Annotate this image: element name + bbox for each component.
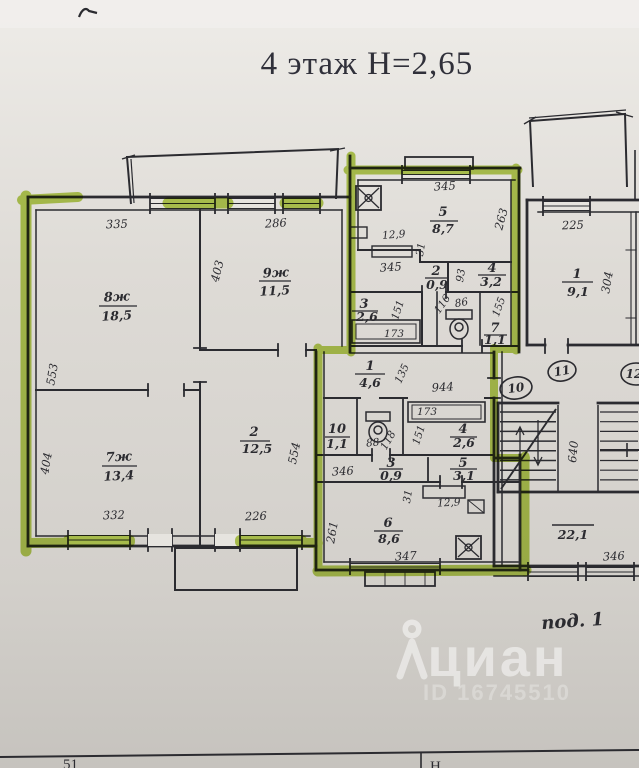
paper-top-strip: [0, 0, 639, 28]
hallway-1-number: 1: [365, 359, 374, 374]
kitchen-6-area: 8,6: [378, 531, 400, 546]
hallway-1-area: 4,6: [359, 375, 381, 390]
dim-129-upper: 12,9: [382, 228, 406, 242]
dim-31-upper: 31: [414, 242, 428, 257]
scanned-floor-plan-page: 4 этаж Н=2,65: [0, 0, 639, 768]
closet-2-area: 0,9: [426, 277, 448, 292]
wc-3-area: 0,9: [380, 468, 402, 483]
bath-3-area: 2,6: [355, 309, 378, 324]
room-7-number: 7ж: [105, 449, 133, 465]
dim-345-mid: 345: [379, 259, 402, 274]
hall-5-area: 3,1: [453, 468, 475, 483]
room-8-area: 18,5: [101, 307, 132, 324]
dim-173-lower: 173: [417, 406, 437, 418]
watermark-brand: циан: [427, 628, 568, 688]
common-area-value: 22,1: [557, 527, 588, 542]
dim-332: 332: [103, 508, 125, 523]
dim-346-right: 346: [602, 548, 625, 563]
dim-345-top: 345: [433, 178, 456, 193]
room-2-area: 12,5: [242, 441, 272, 456]
dim-335: 335: [106, 217, 128, 232]
room-7-area: 13,4: [103, 467, 134, 484]
hall-4-area: 3,2: [480, 274, 502, 289]
dim-640-stairs: 640: [565, 440, 581, 463]
room-9-area: 11,5: [259, 282, 290, 299]
room-2-number: 2: [248, 425, 258, 440]
room-9-number: 9ж: [262, 265, 290, 281]
footer-page-number: 51: [63, 757, 78, 768]
dim-226: 226: [244, 509, 267, 524]
floor-plan: 4 этаж Н=2,65: [0, 0, 639, 768]
closet-10-area: 1,1: [326, 436, 348, 451]
room-8-number: 8ж: [103, 289, 131, 305]
page-title: 4 этаж Н=2,65: [261, 46, 474, 82]
dim-173-upper: 173: [384, 328, 404, 340]
dim-346-left: 346: [331, 463, 354, 478]
bath-4-area: 2,6: [452, 435, 475, 450]
room-1-area: 9,1: [567, 284, 589, 299]
dim-86: 86: [454, 296, 470, 310]
kitchen-5-area: 8,7: [432, 221, 454, 236]
closet-10-number: 10: [328, 422, 346, 437]
dim-88: 88: [366, 436, 381, 449]
dim-93: 93: [454, 268, 468, 284]
room-1-number: 1: [572, 267, 581, 282]
apartment-number-10: 10: [507, 380, 526, 396]
apartment-number-12: 12: [626, 367, 639, 381]
kitchen-5-number: 5: [438, 205, 447, 220]
dim-31-lower: 31: [401, 489, 415, 504]
watermark-id: ID 16745510: [423, 680, 571, 705]
dim-129-lower: 12,9: [437, 496, 461, 509]
kitchen-6-number: 6: [383, 516, 392, 531]
dim-225: 225: [561, 218, 584, 233]
footer-column-label: Н: [430, 759, 441, 768]
apartment-number-11: 11: [553, 363, 572, 380]
dim-286: 286: [263, 215, 287, 230]
dim-347: 347: [394, 548, 417, 563]
dim-944: 944: [431, 379, 454, 394]
